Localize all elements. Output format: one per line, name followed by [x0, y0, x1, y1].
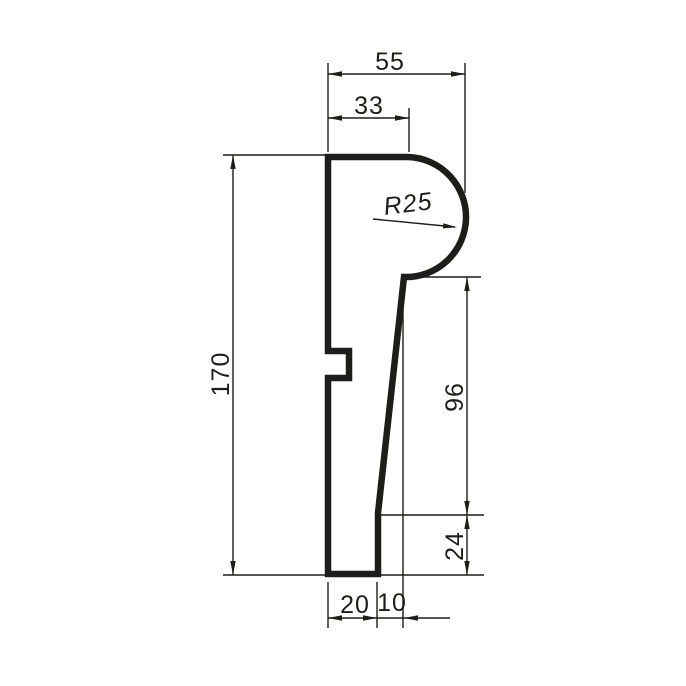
dimension-170: 170	[207, 155, 484, 575]
dimension-label-10: 10	[377, 589, 407, 617]
dimension-label-170: 170	[207, 352, 235, 397]
arrowhead-24-bottom	[464, 561, 469, 575]
arrowhead-55-left	[328, 71, 342, 76]
arrowhead-96-bottom	[464, 501, 469, 515]
radius-label-r25: R25	[382, 187, 434, 221]
radius-callout-r25: R25	[373, 187, 457, 228]
arrowhead-24-top	[464, 515, 469, 529]
dimension-label-55: 55	[375, 48, 405, 76]
dimension-label-33: 33	[354, 92, 384, 120]
technical-drawing: 55 33 170 96 24	[0, 0, 686, 686]
profile-outline	[328, 157, 466, 574]
dimension-label-20: 20	[340, 591, 370, 619]
arrowhead-33-right	[395, 115, 409, 120]
arrowhead-33-left	[328, 115, 342, 120]
arrowhead-170-bottom	[230, 561, 235, 575]
dimension-33: 33	[328, 92, 409, 152]
arrowhead-55-right	[451, 71, 465, 76]
drawing-canvas: 55 33 170 96 24	[0, 0, 686, 686]
dimension-96: 96	[379, 277, 484, 575]
dimension-label-96: 96	[441, 382, 469, 412]
arrowhead-170-top	[230, 155, 235, 169]
arrowhead-96-top	[464, 277, 469, 291]
dimension-label-24: 24	[441, 531, 469, 561]
dimension-24: 24	[441, 515, 470, 575]
